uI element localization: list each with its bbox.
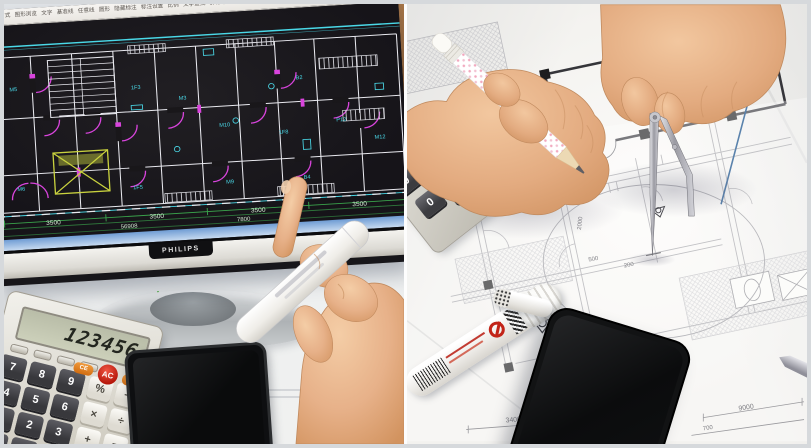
right-photo-drafting: 9000 700 3400 2000 500 200 0 1 0 0: [407, 4, 807, 444]
photo-divider: [404, 4, 407, 444]
pencil-hand: [407, 30, 609, 216]
pointing-hand-overlay: [4, 4, 404, 444]
compass-hand: [601, 5, 786, 137]
compass-legs: [649, 112, 694, 256]
pointing-hand: [231, 175, 404, 444]
photo-composite: 默认方式 图形浏览 文字 基准线 任意线 圆形 隐藏标注 标注设置 比例 文字查…: [0, 0, 811, 448]
hands-overlay: [407, 4, 807, 444]
left-photo-cad-workstation: 默认方式 图形浏览 文字 基准线 任意线 圆形 隐藏标注 标注设置 比例 文字查…: [4, 4, 404, 444]
